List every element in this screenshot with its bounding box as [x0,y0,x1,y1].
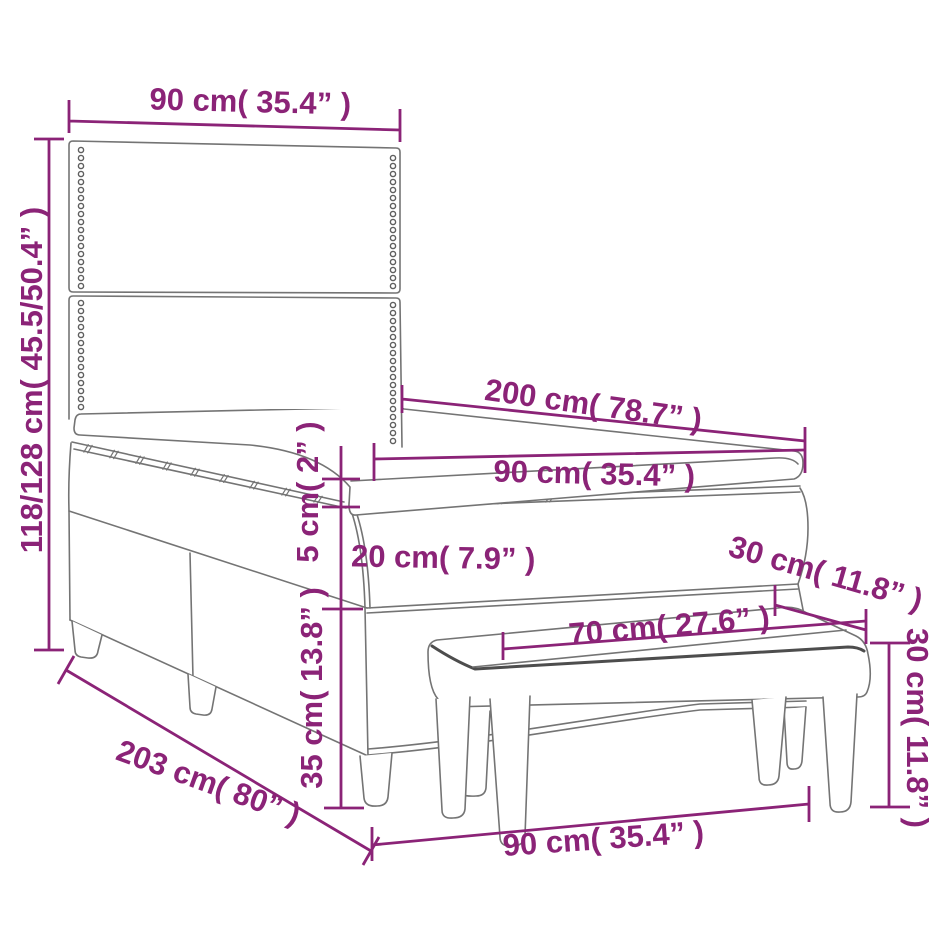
svg-text:35 cm( 13.8” ): 35 cm( 13.8” ) [294,587,329,789]
svg-text:5 cm( 2” ): 5 cm( 2” ) [290,421,325,562]
svg-text:90 cm( 35.4” ): 90 cm( 35.4” ) [493,454,695,494]
svg-text:20 cm( 7.9” ): 20 cm( 7.9” ) [351,538,536,576]
svg-text:118/128 cm( 45.5/50.4” ): 118/128 cm( 45.5/50.4” ) [14,207,49,553]
svg-text:90 cm( 35.4” ): 90 cm( 35.4” ) [149,81,351,121]
svg-text:30 cm( 11.8” ): 30 cm( 11.8” ) [900,628,935,828]
